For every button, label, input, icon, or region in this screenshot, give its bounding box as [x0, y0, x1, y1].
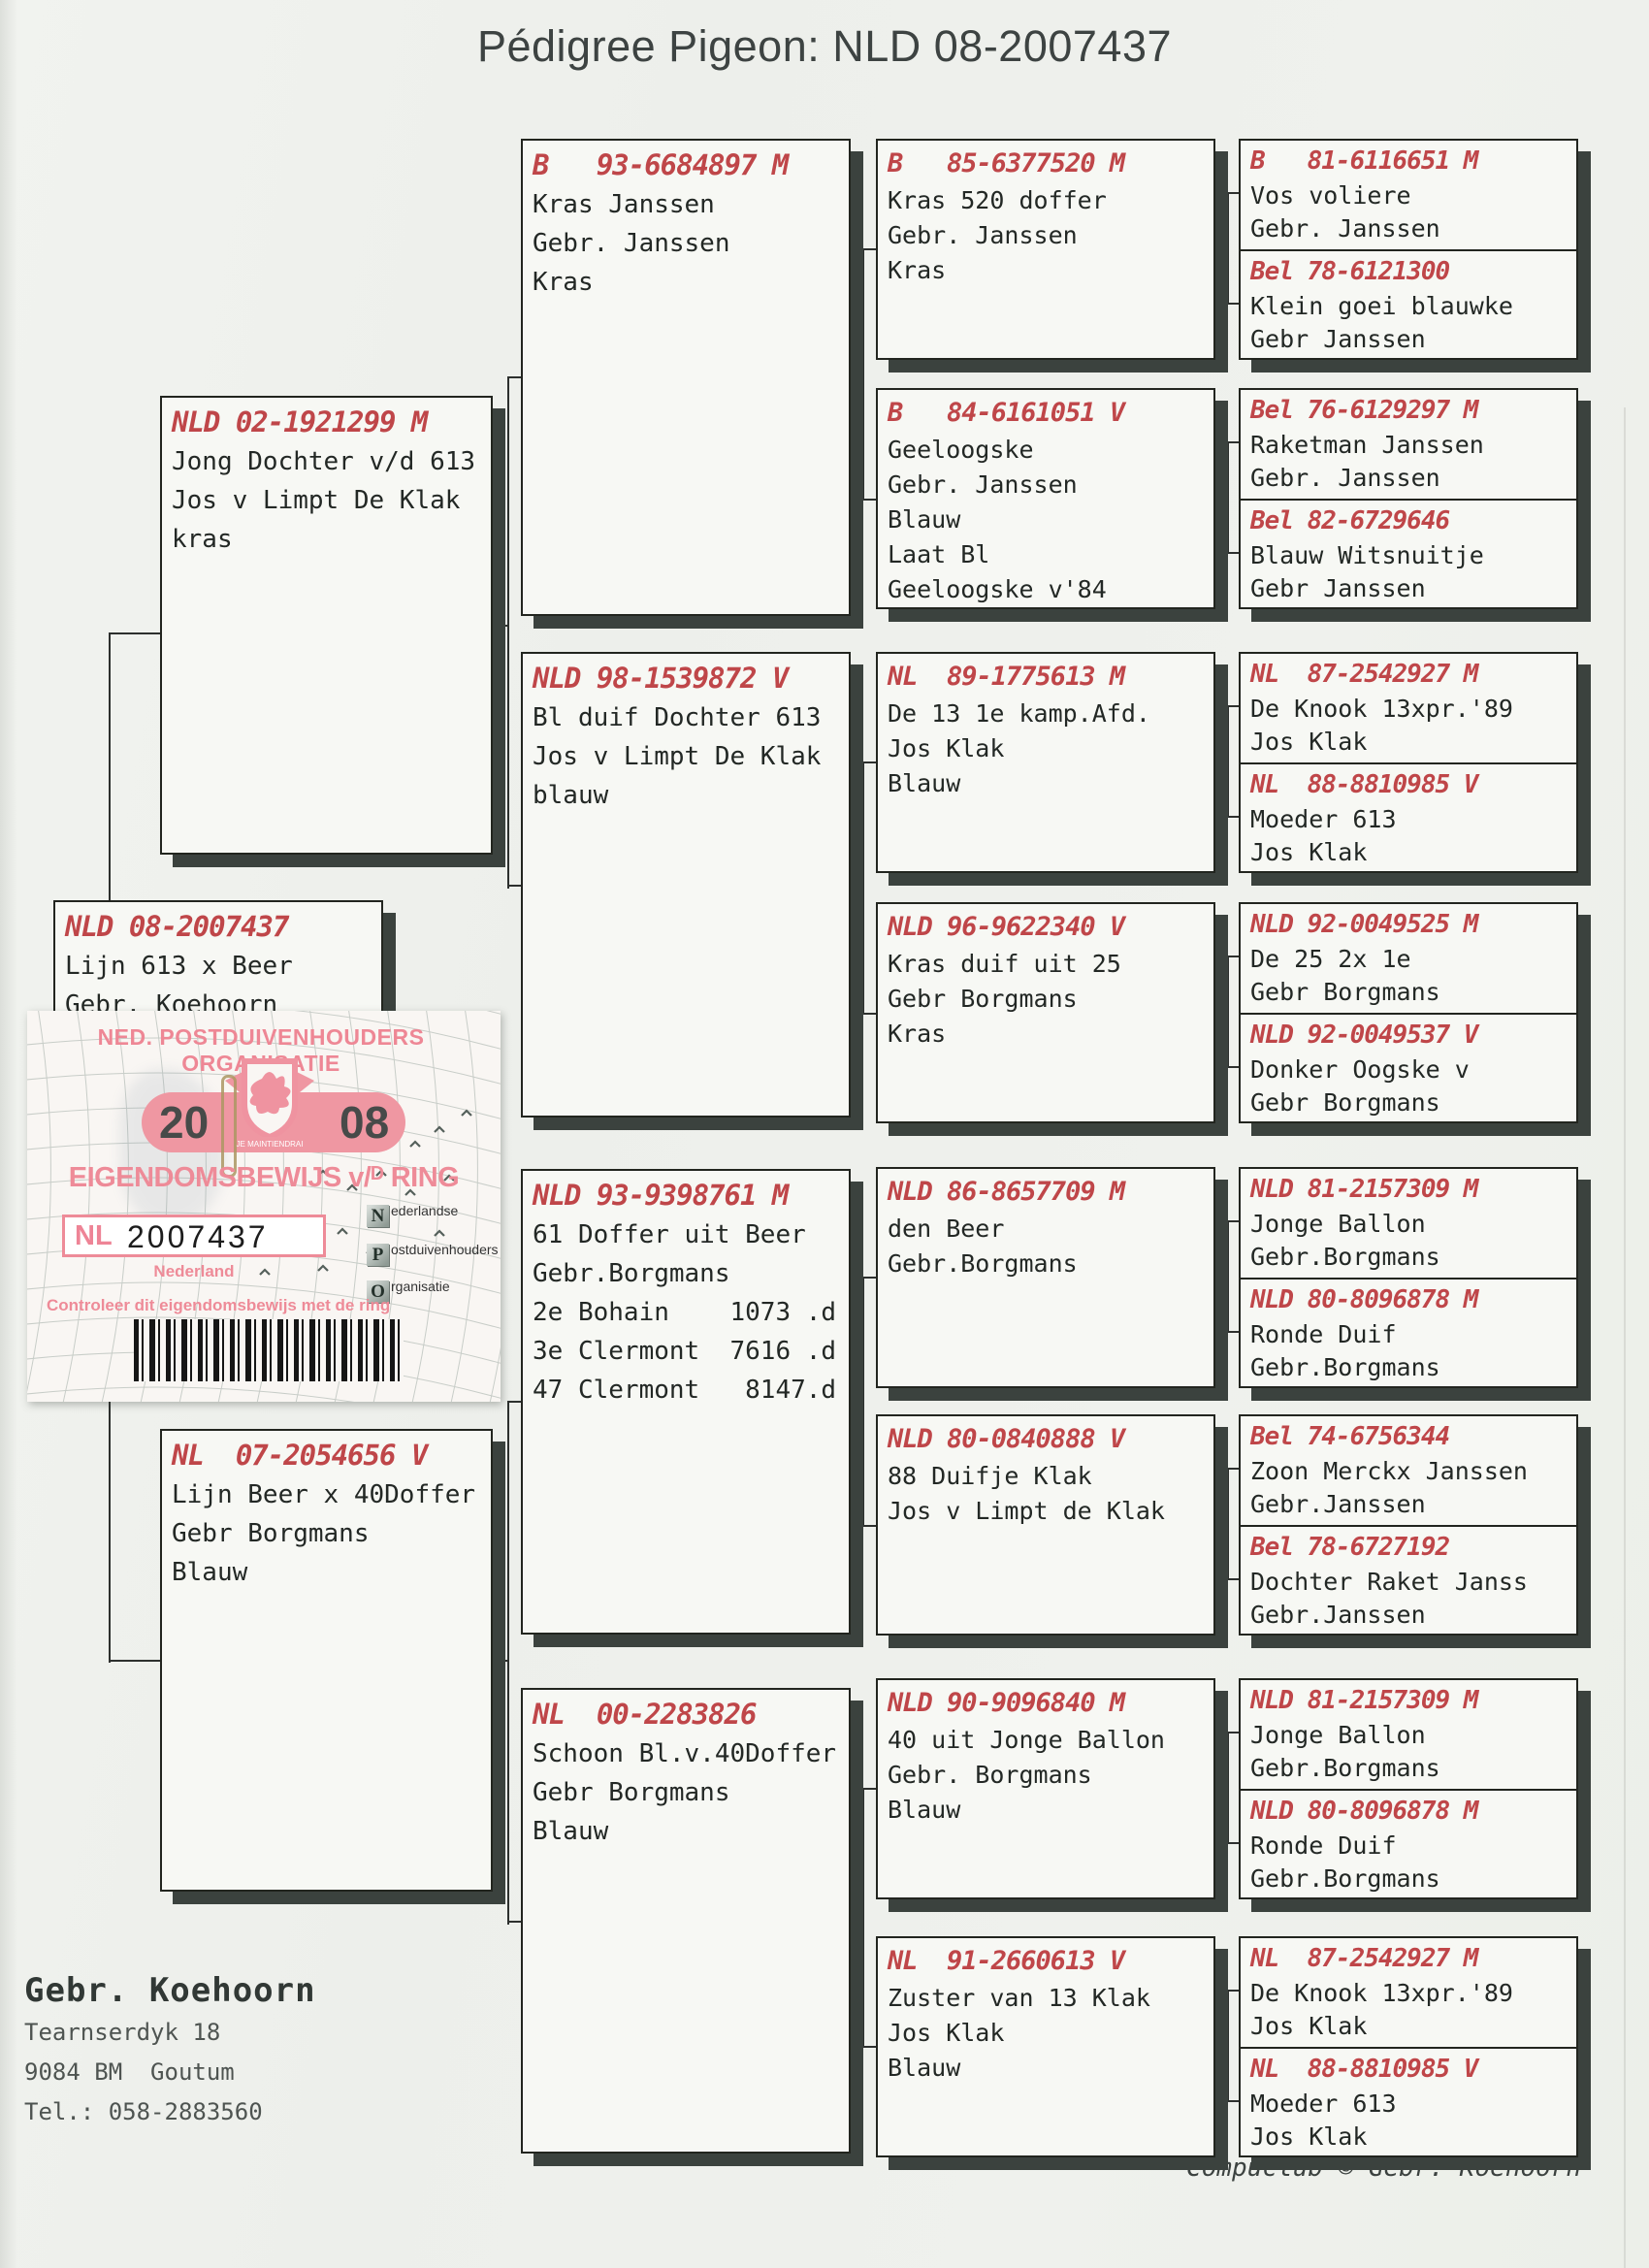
- ring-number: NLD 80-8096878 M: [1250, 1281, 1567, 1318]
- pedigree-text-line: Blauw: [888, 502, 1204, 537]
- npo-word-postduivenhouders: Postduivenhouders: [367, 1242, 499, 1266]
- compuclub-credit: Compuclub © Gebr. Koehoorn: [1186, 2154, 1581, 2183]
- ring-number: NLD 81-2157309 M: [1250, 1171, 1567, 1208]
- pedigree-entry-top: NLD 81-2157309 MJonge BallonGebr.Borgman…: [1241, 1169, 1576, 1278]
- pedigree-entry-top: NL 87-2542927 MDe Knook 13xpr.'89Jos Kla…: [1241, 654, 1576, 762]
- pedigree-entry-top: Bel 76-6129297 MRaketman JanssenGebr. Ja…: [1241, 390, 1576, 499]
- npo-letter-n: N: [367, 1205, 389, 1227]
- pedigree-pair-box-7: NLD 81-2157309 MJonge BallonGebr.Borgman…: [1239, 1678, 1578, 1899]
- pedigree-text-line: Jonge Ballon: [1250, 1719, 1567, 1752]
- pedigree-text-line: Kras: [533, 263, 839, 302]
- npo-word-nederlandse: Nederlandse: [367, 1203, 458, 1227]
- pedigree-pair-box-3: NL 87-2542927 MDe Knook 13xpr.'89Jos Kla…: [1239, 652, 1578, 873]
- pedigree-connector-line: [851, 1401, 864, 1403]
- ring-ownership-certificate: NED. POSTDUIVENHOUDERS ORGANISATIE 20 08…: [27, 1011, 501, 1402]
- pedigree-text-line: De 25 2x 1e: [1250, 943, 1567, 976]
- year-right: 08: [339, 1096, 389, 1149]
- ring-number: Bel 82-6729646: [1250, 502, 1567, 539]
- pedigree-text-line: Blauw: [888, 766, 1204, 801]
- pedigree-text-line: Kras 520 doffer: [888, 183, 1204, 218]
- pedigree-text-line: Geeloogske: [888, 433, 1204, 468]
- ring-number: NLD 92-0049537 V: [1250, 1017, 1567, 1053]
- ring-number: Bel 78-6121300: [1250, 253, 1567, 290]
- pedigree-text-line: Jos Klak: [1250, 2121, 1567, 2154]
- pedigree-connector-line: [851, 376, 864, 378]
- ring-number: NL 91-2660613 V: [888, 1942, 1204, 1981]
- pedigree-connector-line: [1215, 498, 1229, 500]
- pedigree-text-line: Gebr Borgmans: [1250, 976, 1567, 1009]
- pedigree-text-line: De Knook 13xpr.'89: [1250, 1977, 1567, 2010]
- pedigree-text-line: Gebr Janssen: [1250, 572, 1567, 605]
- bird-silhouette-icon: [435, 1127, 444, 1132]
- pedigree-text-line: 40 uit Jonge Ballon: [888, 1723, 1204, 1758]
- page-title: Pédigree Pigeon: NLD 08-2007437: [0, 21, 1649, 72]
- pedigree-text-line: Blauw: [888, 2051, 1204, 2086]
- ring-number: NLD 90-9096840 M: [888, 1684, 1204, 1723]
- pedigree-box-great-grandparent-8: NL 91-2660613 VZuster van 13 KlakJos Kla…: [876, 1936, 1215, 2157]
- ring-number: Bel 76-6129297 M: [1250, 392, 1567, 429]
- pedigree-text-line: blauw: [533, 776, 839, 815]
- pedigree-text-line: 88 Duifje Klak: [888, 1459, 1204, 1494]
- ring-number: B 93-6684897 M: [533, 145, 839, 185]
- pedigree-connector-line: [1215, 1788, 1229, 1790]
- pedigree-entry-bottom: NLD 80-8096878 MRonde DuifGebr.Borgmans: [1241, 1278, 1576, 1386]
- ring-number: Bel 74-6756344: [1250, 1418, 1567, 1455]
- pedigree-pair-box-2: Bel 76-6129297 MRaketman JanssenGebr. Ja…: [1239, 388, 1578, 609]
- pedigree-text-line: Gebr Borgmans: [1250, 1086, 1567, 1119]
- pedigree-connector-line: [493, 1660, 509, 1662]
- pedigree-entry-top: NLD 81-2157309 MJonge BallonGebr.Borgman…: [1241, 1680, 1576, 1789]
- npo-word-rest: rganisatie: [391, 1279, 450, 1294]
- pedigree-text-line: Zuster van 13 Klak: [888, 1981, 1204, 2016]
- pedigree-box-great-grandparent-6: NLD 80-0840888 V88 Duifje KlakJos v Limp…: [876, 1414, 1215, 1636]
- bird-silhouette-icon: [338, 1229, 347, 1234]
- pedigree-document-page: Pédigree Pigeon: NLD 08-2007437 NLD 08-2…: [0, 0, 1649, 2268]
- pedigree-connector-line: [493, 625, 509, 627]
- pedigree-text-line: Jos Klak: [888, 2016, 1204, 2051]
- pedigree-connector-line: [109, 1660, 162, 1662]
- pedigree-entry-bottom: Bel 82-6729646Blauw WitsnuitjeGebr Janss…: [1241, 499, 1576, 607]
- ring-number: NLD 02-1921299 M: [172, 402, 481, 442]
- pedigree-connector-line: [507, 1401, 509, 1925]
- pedigree-connector-line: [851, 884, 864, 886]
- pedigree-box-subject: NLD 08-2007437Lijn 613 x BeerGebr. Koeho…: [53, 900, 383, 1021]
- pedigree-connector-line: [862, 1788, 864, 2048]
- pedigree-entry-bottom: NL 88-8810985 VMoeder 613Jos Klak: [1241, 2047, 1576, 2155]
- ring-number: NLD 80-0840888 V: [888, 1420, 1204, 1459]
- pedigree-text-line: Gebr Borgmans: [172, 1514, 481, 1553]
- pedigree-text-line: Jos Klak: [1250, 836, 1567, 869]
- pedigree-text-line: Lijn Beer x 40Doffer: [172, 1475, 481, 1514]
- pedigree-text-line: Jos v Limpt De Klak: [172, 481, 481, 520]
- pedigree-text-line: Gebr.Borgmans: [1250, 1752, 1567, 1785]
- pedigree-text-line: De 13 1e kamp.Afd.: [888, 697, 1204, 731]
- ring-number: NLD 86-8657709 M: [888, 1173, 1204, 1212]
- owner-city: 9084 BM Goutum: [24, 2056, 316, 2090]
- bird-silhouette-icon: [462, 1111, 471, 1116]
- pedigree-box-great-grandparent-3: NL 89-1775613 MDe 13 1e kamp.Afd.Jos Kla…: [876, 652, 1215, 873]
- pedigree-text-line: Gebr.Borgmans: [1250, 1351, 1567, 1384]
- ring-number: Bel 78-6727192: [1250, 1529, 1567, 1566]
- pedigree-text-line: Kras Janssen: [533, 185, 839, 224]
- pedigree-connector-line: [862, 248, 864, 501]
- npo-letter-p: P: [367, 1244, 389, 1266]
- pedigree-text-line: Kras: [888, 253, 1204, 288]
- pedigree-text-line: Jonge Ballon: [1250, 1208, 1567, 1241]
- ring-number: NLD 96-9622340 V: [888, 908, 1204, 947]
- pedigree-text-line: Gebr.Borgmans: [1250, 1863, 1567, 1895]
- pedigree-pair-box-5: NLD 81-2157309 MJonge BallonGebr.Borgman…: [1239, 1167, 1578, 1388]
- pedigree-entry-bottom: NL 88-8810985 VMoeder 613Jos Klak: [1241, 762, 1576, 871]
- pedigree-text-line: Zoon Merckx Janssen: [1250, 1455, 1567, 1488]
- ring-country-label: NL: [75, 1220, 113, 1252]
- pedigree-box-great-grandparent-1: B 85-6377520 MKras 520 dofferGebr. Janss…: [876, 139, 1215, 360]
- pedigree-text-line: Vos voliere: [1250, 179, 1567, 212]
- pedigree-box-great-grandparent-2: B 84-6161051 VGeeloogskeGebr. JanssenBla…: [876, 388, 1215, 609]
- pedigree-text-line: Gebr Janssen: [1250, 323, 1567, 356]
- nederland-label: Nederland: [62, 1262, 326, 1281]
- pedigree-text-line: Schoon Bl.v.40Doffer: [533, 1734, 839, 1773]
- pedigree-text-line: Gebr.Borgmans: [533, 1254, 839, 1293]
- pedigree-box-great-grandparent-4: NLD 96-9622340 VKras duif uit 25Gebr Bor…: [876, 902, 1215, 1123]
- pedigree-connector-line: [1215, 761, 1229, 763]
- pedigree-pair-box-4: NLD 92-0049525 MDe 25 2x 1eGebr Borgmans…: [1239, 902, 1578, 1123]
- pedigree-text-line: Jos Klak: [888, 731, 1204, 766]
- pedigree-text-line: Dochter Raket Janss: [1250, 1566, 1567, 1599]
- pedigree-text-line: Gebr. Janssen: [888, 468, 1204, 502]
- owner-phone: Tel.: 058-2883560: [24, 2095, 316, 2129]
- owner-street: Tearnserdyk 18: [24, 2016, 316, 2050]
- pedigree-text-line: De Knook 13xpr.'89: [1250, 693, 1567, 726]
- pedigree-text-line: Blauw: [533, 1812, 839, 1851]
- pedigree-box-grandparent-3: NLD 93-9398761 M61 Doffer uit BeerGebr.B…: [521, 1169, 851, 1635]
- ring-number: NLD 98-1539872 V: [533, 658, 839, 698]
- pedigree-text-line: Blauw Witsnuitje: [1250, 539, 1567, 572]
- pedigree-text-line: Gebr Borgmans: [533, 1773, 839, 1812]
- pedigree-connector-line: [862, 761, 864, 1015]
- pedigree-text-line: Gebr. Borgmans: [888, 1758, 1204, 1793]
- pedigree-text-line: Moeder 613: [1250, 803, 1567, 836]
- npo-word-rest: ederlandse: [391, 1203, 458, 1218]
- pedigree-text-line: Blauw: [172, 1553, 481, 1592]
- ring-id-box: NL 2007437: [62, 1215, 326, 1257]
- pedigree-entry-top: NL 87-2542927 MDe Knook 13xpr.'89Jos Kla…: [1241, 1938, 1576, 2047]
- ring-number: NLD 93-9398761 M: [533, 1175, 839, 1215]
- ring-number: NLD 92-0049525 M: [1250, 906, 1567, 943]
- npo-word-rest: ostduivenhouders: [391, 1242, 499, 1257]
- ring-number: NLD 81-2157309 M: [1250, 1682, 1567, 1719]
- pedigree-entry-top: Bel 74-6756344Zoon Merckx JanssenGebr.Ja…: [1241, 1416, 1576, 1525]
- pedigree-text-line: Laat Bl: [888, 537, 1204, 572]
- pedigree-connector-line: [1215, 1524, 1229, 1526]
- owner-name: Gebr. Koehoorn: [24, 1971, 316, 2010]
- pedigree-connector-line: [1215, 2046, 1229, 2048]
- ownership-heading: EIGENDOMSBEWIJS v/ᴰ RING: [27, 1162, 501, 1194]
- pedigree-entry-bottom: Bel 78-6727192Dochter Raket JanssGebr.Ja…: [1241, 1525, 1576, 1634]
- pedigree-entry-bottom: NLD 92-0049537 VDonker Oogske vGebr Borg…: [1241, 1013, 1576, 1121]
- pedigree-text-line: Jong Dochter v/d 613: [172, 442, 481, 481]
- pedigree-text-line: Kras: [888, 1017, 1204, 1052]
- pedigree-text-line: Gebr.Janssen: [1250, 1488, 1567, 1521]
- ring-number: B 85-6377520 M: [888, 145, 1204, 183]
- ring-number: NL 87-2542927 M: [1250, 1940, 1567, 1977]
- pedigree-text-line: Geeloogske v'84: [888, 572, 1204, 607]
- pedigree-text-line: Klein goei blauwke: [1250, 290, 1567, 323]
- ring-number-value: 2007437: [127, 1219, 269, 1255]
- pedigree-box-grandparent-2: NLD 98-1539872 VBl duif Dochter 613Jos v…: [521, 652, 851, 1118]
- ring-number: NLD 08-2007437: [65, 906, 372, 947]
- pedigree-box-grandparent-4: NL 00-2283826Schoon Bl.v.40DofferGebr Bo…: [521, 1688, 851, 2154]
- pedigree-pair-box-8: NL 87-2542927 MDe Knook 13xpr.'89Jos Kla…: [1239, 1936, 1578, 2157]
- pedigree-text-line: Gebr. Janssen: [888, 218, 1204, 253]
- pedigree-text-line: den Beer: [888, 1212, 1204, 1247]
- ring-number: NL 07-2054656 V: [172, 1435, 481, 1475]
- pedigree-text-line: Jos Klak: [1250, 2010, 1567, 2043]
- pedigree-text-line: Jos v Limpt De Klak: [533, 737, 839, 776]
- crest-motto: JE MAINTIENDRAI: [237, 1140, 304, 1149]
- pedigree-entry-bottom: NLD 80-8096878 MRonde DuifGebr.Borgmans: [1241, 1789, 1576, 1897]
- pedigree-text-line: Jos v Limpt de Klak: [888, 1494, 1204, 1529]
- pedigree-connector-line: [851, 1920, 864, 1922]
- pedigree-box-great-grandparent-5: NLD 86-8657709 Mden BeerGebr.Borgmans: [876, 1167, 1215, 1388]
- ring-number: NLD 80-8096878 M: [1250, 1793, 1567, 1830]
- ring-number: NL 88-8810985 V: [1250, 766, 1567, 803]
- pedigree-connector-line: [507, 376, 509, 889]
- verify-note: Controleer dit eigendomsbewijs met de ri…: [47, 1296, 390, 1315]
- pedigree-text-line: Kras duif uit 25: [888, 947, 1204, 982]
- barcode: [134, 1319, 404, 1381]
- ring-number: B 81-6116651 M: [1250, 143, 1567, 179]
- pedigree-text-line: Ronde Duif: [1250, 1830, 1567, 1863]
- pedigree-connector-line: [1215, 248, 1229, 250]
- pedigree-entry-bottom: Bel 78-6121300Klein goei blauwkeGebr Jan…: [1241, 249, 1576, 358]
- pedigree-text-line: 3e Clermont 7616 .d: [533, 1332, 839, 1371]
- pedigree-connector-line: [1215, 1012, 1229, 1014]
- pedigree-text-line: Moeder 613: [1250, 2088, 1567, 2121]
- pedigree-pair-box-6: Bel 74-6756344Zoon Merckx JanssenGebr.Ja…: [1239, 1414, 1578, 1636]
- pedigree-box-dam: NL 07-2054656 VLijn Beer x 40DofferGebr …: [160, 1429, 493, 1892]
- pedigree-text-line: 61 Doffer uit Beer: [533, 1215, 839, 1254]
- ring-number: NL 87-2542927 M: [1250, 656, 1567, 693]
- pedigree-box-great-grandparent-7: NLD 90-9096840 M40 uit Jonge BallonGebr.…: [876, 1678, 1215, 1899]
- pedigree-entry-top: B 81-6116651 MVos voliereGebr. Janssen: [1241, 141, 1576, 249]
- owner-address-block: Gebr. Koehoorn Tearnserdyk 18 9084 BM Go…: [24, 1971, 316, 2129]
- bird-silhouette-icon: [410, 1142, 420, 1147]
- pedigree-pair-box-1: B 81-6116651 MVos voliereGebr. JanssenBe…: [1239, 139, 1578, 360]
- pedigree-text-line: Jos Klak: [1250, 726, 1567, 759]
- pedigree-text-line: Ronde Duif: [1250, 1318, 1567, 1351]
- year-left: 20: [159, 1096, 209, 1149]
- pedigree-text-line: Gebr.Borgmans: [888, 1247, 1204, 1281]
- pedigree-text-line: Gebr Borgmans: [888, 982, 1204, 1017]
- pedigree-text-line: Raketman Janssen: [1250, 429, 1567, 462]
- pedigree-text-line: Donker Oogske v: [1250, 1053, 1567, 1086]
- pedigree-entry-top: NLD 92-0049525 MDe 25 2x 1eGebr Borgmans: [1241, 904, 1576, 1013]
- pedigree-text-line: Blauw: [888, 1793, 1204, 1828]
- pedigree-connector-line: [1215, 1277, 1229, 1279]
- pedigree-text-line: Gebr. Janssen: [1250, 212, 1567, 245]
- pedigree-text-line: 47 Clermont 8147.d: [533, 1371, 839, 1409]
- pedigree-connector-line: [109, 632, 162, 634]
- pedigree-text-line: Bl duif Dochter 613: [533, 698, 839, 737]
- pedigree-text-line: Gebr.Borgmans: [1250, 1241, 1567, 1274]
- pedigree-text-line: Gebr. Janssen: [533, 224, 839, 263]
- pedigree-text-line: Lijn 613 x Beer: [65, 947, 372, 986]
- pedigree-box-grandparent-1: B 93-6684897 MKras JanssenGebr. JanssenK…: [521, 139, 851, 616]
- ring-number: NL 00-2283826: [533, 1694, 839, 1734]
- pedigree-text-line: Gebr.Janssen: [1250, 1599, 1567, 1632]
- bird-silhouette-icon: [435, 1231, 444, 1236]
- ring-number: B 84-6161051 V: [888, 394, 1204, 433]
- pedigree-text-line: 2e Bohain 1073 .d: [533, 1293, 839, 1332]
- pedigree-box-sire: NLD 02-1921299 MJong Dochter v/d 613Jos …: [160, 396, 493, 855]
- ring-number: NL 89-1775613 M: [888, 658, 1204, 697]
- ring-number: NL 88-8810985 V: [1250, 2051, 1567, 2088]
- pedigree-text-line: Gebr. Janssen: [1250, 462, 1567, 495]
- pedigree-text-line: kras: [172, 520, 481, 559]
